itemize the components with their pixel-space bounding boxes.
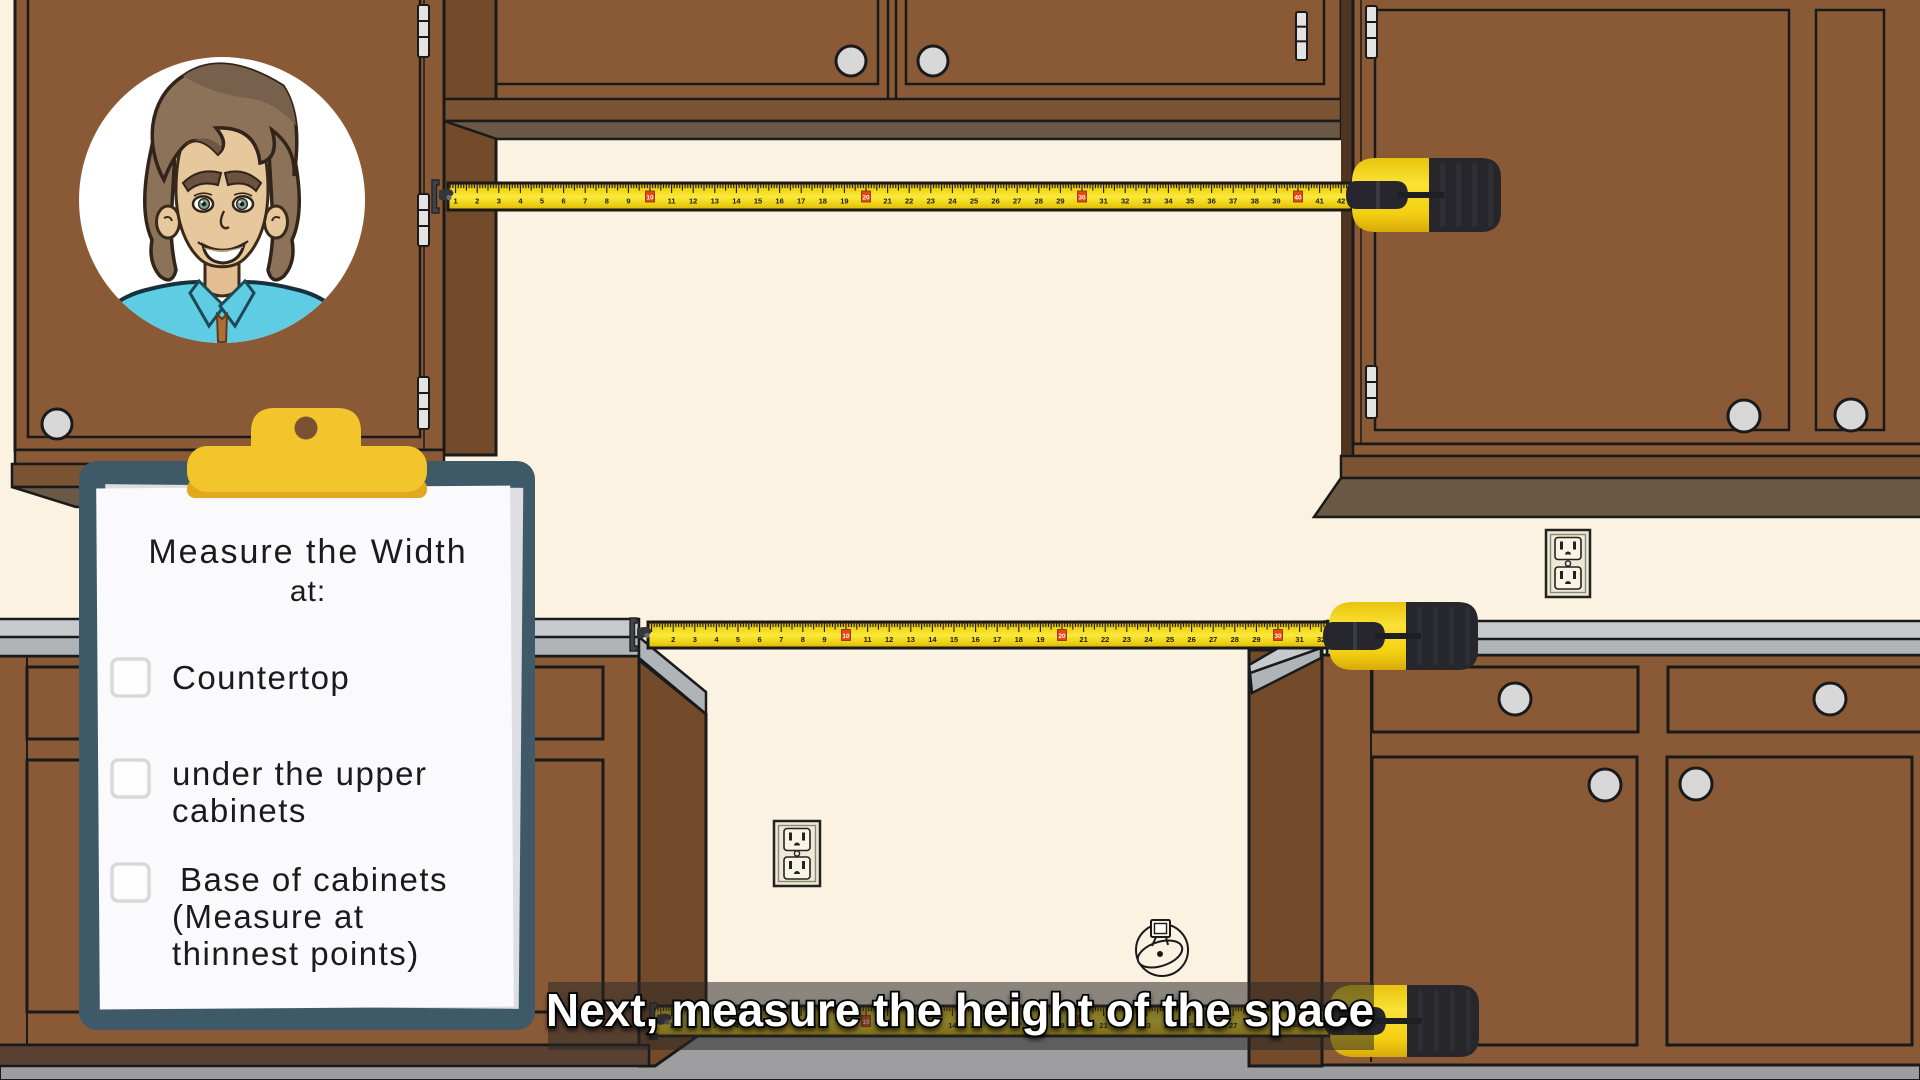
svg-text:20: 20 <box>1058 633 1066 640</box>
svg-text:at:: at: <box>290 575 326 608</box>
svg-text:6: 6 <box>758 635 762 644</box>
svg-text:19: 19 <box>1036 635 1044 644</box>
svg-text:9: 9 <box>626 197 630 206</box>
svg-text:21: 21 <box>883 197 891 206</box>
svg-text:34: 34 <box>1164 197 1173 206</box>
svg-text:6: 6 <box>562 197 566 206</box>
svg-text:Measure the Width: Measure the Width <box>148 533 467 571</box>
svg-text:2: 2 <box>475 197 479 206</box>
svg-text:17: 17 <box>993 635 1001 644</box>
svg-text:8: 8 <box>605 197 609 206</box>
svg-text:22: 22 <box>905 197 913 206</box>
svg-text:31: 31 <box>1099 197 1107 206</box>
svg-text:Next, measure the height of th: Next, measure the height of the space <box>546 984 1374 1036</box>
svg-text:12: 12 <box>885 635 893 644</box>
svg-text:16: 16 <box>971 635 979 644</box>
svg-text:36: 36 <box>1207 197 1215 206</box>
svg-text:29: 29 <box>1252 635 1260 644</box>
svg-text:24: 24 <box>948 197 957 206</box>
svg-text:28: 28 <box>1231 635 1239 644</box>
svg-text:15: 15 <box>950 635 958 644</box>
svg-text:40: 40 <box>1294 194 1302 201</box>
svg-text:cabinets: cabinets <box>172 792 307 829</box>
svg-text:30: 30 <box>1078 194 1086 201</box>
svg-text:11: 11 <box>668 197 676 206</box>
svg-text:26: 26 <box>1187 635 1195 644</box>
svg-text:9: 9 <box>822 635 826 644</box>
svg-text:(Measure at: (Measure at <box>172 898 365 935</box>
svg-text:13: 13 <box>907 635 915 644</box>
svg-text:10: 10 <box>842 633 850 640</box>
svg-text:under the upper: under the upper <box>172 755 428 792</box>
svg-text:23: 23 <box>1123 635 1131 644</box>
svg-text:29: 29 <box>1056 197 1064 206</box>
svg-text:8: 8 <box>801 635 805 644</box>
svg-text:Countertop: Countertop <box>172 659 350 696</box>
svg-text:24: 24 <box>1144 635 1153 644</box>
svg-text:25: 25 <box>1166 635 1174 644</box>
svg-text:32: 32 <box>1121 197 1129 206</box>
svg-text:5: 5 <box>540 197 544 206</box>
svg-text:39: 39 <box>1272 197 1280 206</box>
svg-text:25: 25 <box>970 197 978 206</box>
svg-text:28: 28 <box>1035 197 1043 206</box>
svg-text:14: 14 <box>928 635 937 644</box>
svg-text:2: 2 <box>671 635 675 644</box>
svg-text:21: 21 <box>1079 635 1087 644</box>
svg-text:41: 41 <box>1315 197 1323 206</box>
svg-text:30: 30 <box>1274 633 1282 640</box>
svg-text:1: 1 <box>454 197 458 206</box>
svg-text:16: 16 <box>775 197 783 206</box>
svg-text:19: 19 <box>840 197 848 206</box>
svg-text:17: 17 <box>797 197 805 206</box>
svg-text:7: 7 <box>583 197 587 206</box>
svg-text:31: 31 <box>1295 635 1303 644</box>
svg-text:27: 27 <box>1209 635 1217 644</box>
svg-text:20: 20 <box>862 194 870 201</box>
svg-text:3: 3 <box>693 635 697 644</box>
svg-text:14: 14 <box>732 197 741 206</box>
svg-text:11: 11 <box>864 635 872 644</box>
svg-text:27: 27 <box>1013 197 1021 206</box>
svg-text:33: 33 <box>1143 197 1151 206</box>
svg-text:3: 3 <box>497 197 501 206</box>
svg-text:Base of cabinets: Base of cabinets <box>180 861 448 898</box>
svg-text:18: 18 <box>1015 635 1023 644</box>
svg-text:12: 12 <box>689 197 697 206</box>
svg-text:26: 26 <box>991 197 999 206</box>
svg-text:7: 7 <box>779 635 783 644</box>
svg-text:13: 13 <box>711 197 719 206</box>
svg-text:35: 35 <box>1186 197 1194 206</box>
svg-text:10: 10 <box>646 194 654 201</box>
svg-text:18: 18 <box>819 197 827 206</box>
svg-text:37: 37 <box>1229 197 1237 206</box>
svg-text:thinnest points): thinnest points) <box>172 935 420 972</box>
svg-text:38: 38 <box>1251 197 1259 206</box>
svg-text:15: 15 <box>754 197 762 206</box>
svg-text:23: 23 <box>927 197 935 206</box>
svg-text:42: 42 <box>1337 197 1345 206</box>
svg-text:22: 22 <box>1101 635 1109 644</box>
svg-text:5: 5 <box>736 635 740 644</box>
